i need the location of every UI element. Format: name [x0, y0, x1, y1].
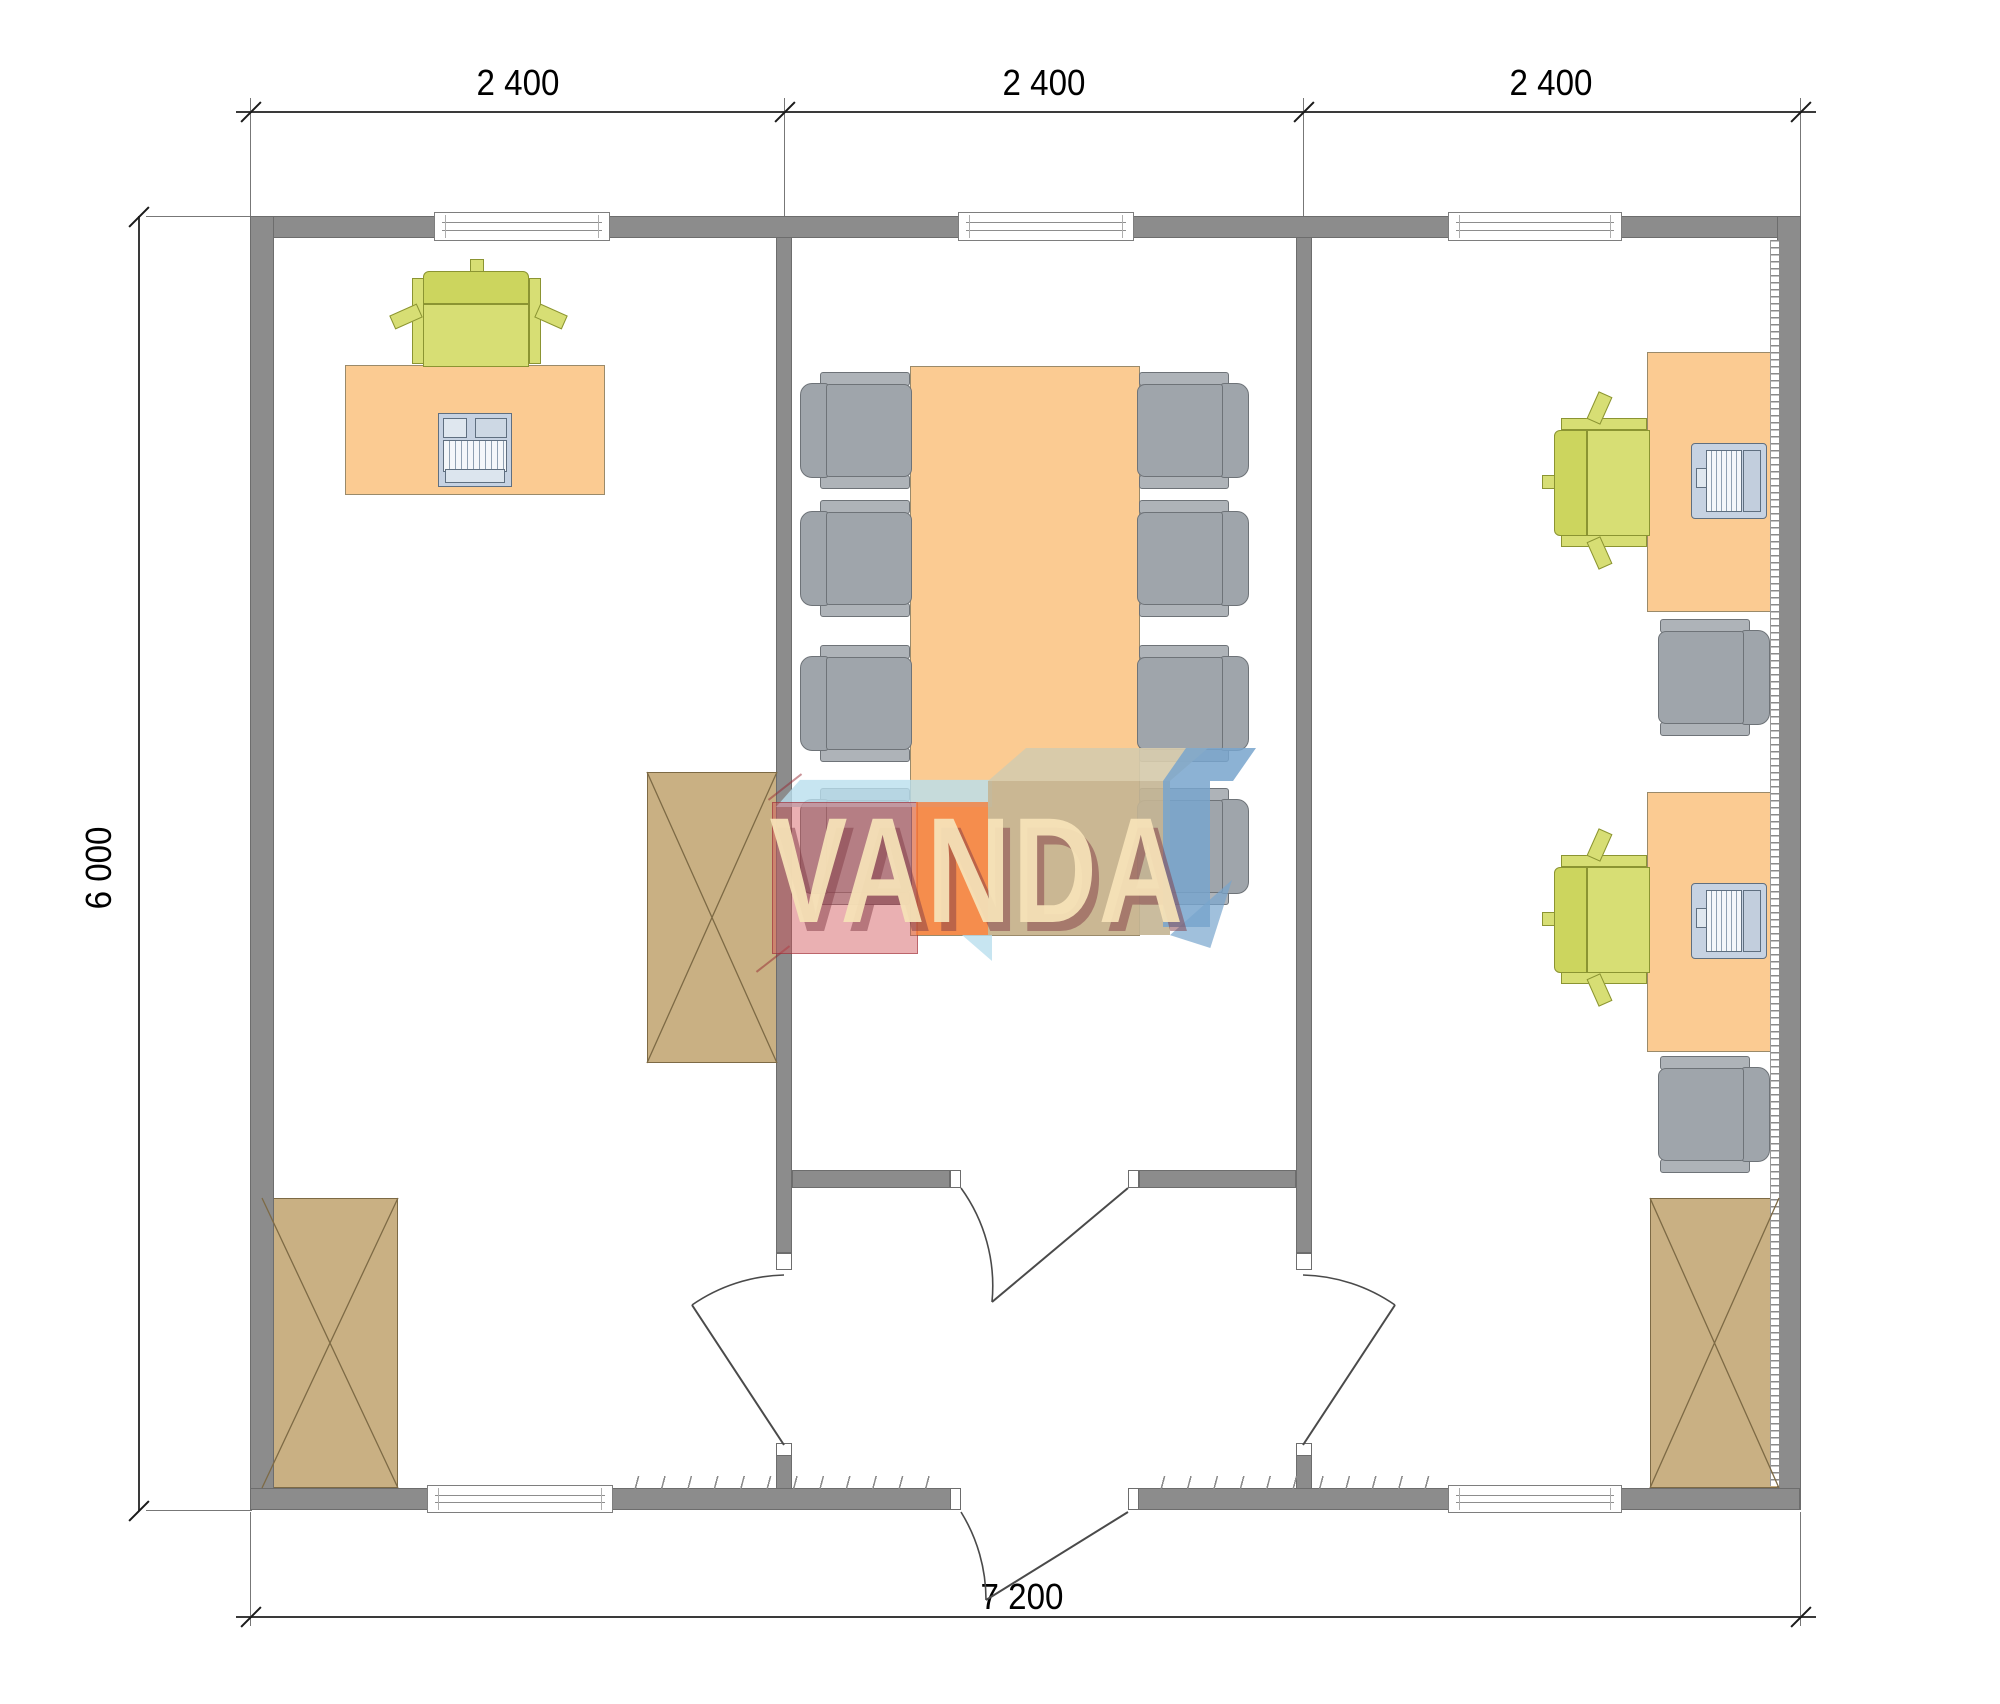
laptop-keys — [1706, 450, 1742, 512]
chair-backrest — [1220, 383, 1249, 478]
keyboard-tray — [445, 469, 505, 483]
office-chair-green — [395, 259, 563, 369]
laptop — [1691, 443, 1767, 519]
door-arc-right-room — [1303, 1275, 1395, 1305]
chair-armrest — [820, 748, 910, 762]
chair-seat — [1587, 430, 1650, 536]
chair-post — [529, 278, 541, 364]
chair-backrest — [800, 383, 829, 478]
chair-backrest — [800, 656, 829, 751]
chair-backrest — [1741, 1067, 1770, 1162]
meeting-chair — [1139, 788, 1249, 903]
laptop — [1691, 883, 1767, 959]
extension-line — [1800, 1512, 1801, 1626]
dim-label-top-2: 2 400 — [970, 62, 1117, 104]
wall-interior-left — [776, 237, 792, 1253]
extension-line — [784, 98, 785, 216]
visitor-chair — [1660, 619, 1770, 734]
meeting-chair — [1139, 500, 1249, 615]
door-jamb — [950, 1170, 961, 1188]
chair-armrest — [820, 475, 910, 489]
office-chair-green — [1542, 833, 1652, 1001]
visitor-chair — [1660, 1056, 1770, 1171]
meeting-chair — [800, 372, 910, 487]
window-top-right — [1448, 212, 1622, 241]
wall-lining-bottom-right — [1139, 1476, 1448, 1489]
meeting-chair — [800, 500, 910, 615]
keyboard-keys — [443, 440, 507, 472]
cabinet-bottom-right — [1650, 1198, 1779, 1488]
chair-armrest — [820, 891, 910, 905]
meeting-chair — [1139, 372, 1249, 487]
window-bottom-left — [427, 1485, 613, 1513]
cabinet-bottom-left — [262, 1198, 398, 1488]
door-jamb — [1128, 1170, 1139, 1188]
meeting-chair — [800, 788, 910, 903]
keyboard-detail — [443, 418, 467, 438]
door-arc-left-room — [692, 1275, 784, 1305]
dim-line-top — [236, 111, 1816, 113]
door-jamb — [776, 1253, 792, 1270]
chair-seat — [1137, 800, 1223, 893]
chair-seat — [1658, 1068, 1744, 1161]
chair-armrest — [1660, 1159, 1750, 1173]
dim-label-left: 6 000 — [78, 794, 120, 941]
door-jamb — [950, 1488, 961, 1510]
chair-armrest — [1139, 603, 1229, 617]
dim-label-bottom: 7 200 — [948, 1576, 1095, 1618]
laptop-screen — [1743, 890, 1761, 952]
chair-seat — [1658, 631, 1744, 724]
wall-lining-bottom-left — [613, 1476, 950, 1489]
meeting-chair — [1139, 645, 1249, 760]
chair-armrest — [1139, 891, 1229, 905]
wall-lining-right — [1770, 240, 1779, 1486]
logo-accent-cyan — [962, 935, 992, 961]
chair-backrest — [1220, 799, 1249, 894]
chair-seat — [1587, 867, 1650, 973]
chair-backrest — [1220, 511, 1249, 606]
door-jamb — [1296, 1443, 1312, 1456]
chair-backrest — [1220, 656, 1249, 751]
door-arc-middle-room — [961, 1188, 993, 1302]
chair-backrest — [1741, 630, 1770, 725]
door-jamb — [1128, 1488, 1139, 1510]
office-chair-green — [1542, 396, 1652, 564]
window-top-left — [434, 212, 610, 241]
extension-line — [1303, 98, 1304, 216]
chair-seat — [1137, 512, 1223, 605]
window-top-middle — [958, 212, 1134, 241]
dim-label-top-1: 2 400 — [444, 62, 591, 104]
chair-seat — [826, 512, 912, 605]
wall-vestibule-left — [792, 1170, 950, 1188]
meeting-chair — [800, 645, 910, 760]
chair-backrest — [1554, 430, 1587, 536]
chair-backrest — [800, 799, 829, 894]
wall-interior-right — [1296, 237, 1312, 1253]
extension-line — [250, 1512, 251, 1626]
door-jamb — [776, 1443, 792, 1456]
chair-armrest — [1139, 748, 1229, 762]
laptop-screen — [1743, 450, 1761, 512]
dim-line-left — [138, 216, 140, 1511]
door-jamb — [1296, 1253, 1312, 1270]
wall-exterior-left — [250, 216, 274, 1510]
dim-label-top-3: 2 400 — [1477, 62, 1624, 104]
chair-seat — [826, 800, 912, 893]
chair-backrest — [800, 511, 829, 606]
conference-table — [910, 366, 1140, 936]
chair-seat — [1137, 384, 1223, 477]
keyboard — [438, 413, 512, 487]
extension-line — [1800, 98, 1801, 216]
extension-line — [250, 98, 251, 216]
chair-backrest — [1554, 867, 1587, 973]
wall-vestibule-right — [1139, 1170, 1296, 1188]
floor-plan-canvas: 2 400 2 400 2 400 6 000 7 200 — [0, 0, 2000, 1704]
laptop-keys — [1706, 890, 1742, 952]
chair-armrest — [820, 603, 910, 617]
window-bottom-right — [1448, 1485, 1622, 1513]
chair-seat — [826, 657, 912, 750]
cabinet-left-middle — [647, 772, 777, 1063]
chair-seat — [1137, 657, 1223, 750]
chair-post — [1561, 418, 1647, 430]
chair-post — [1561, 855, 1647, 867]
chair-backrest — [423, 271, 529, 304]
keyboard-detail — [475, 418, 507, 438]
chair-armrest — [1139, 475, 1229, 489]
extension-line — [146, 1510, 252, 1511]
chair-armrest — [1660, 722, 1750, 736]
extension-line — [146, 216, 252, 217]
wall-exterior-right — [1777, 216, 1801, 1510]
door-leaf-left-room — [692, 1305, 784, 1445]
chair-seat — [826, 384, 912, 477]
door-leaf-middle-room — [992, 1188, 1128, 1302]
chair-seat — [423, 304, 529, 367]
door-leaf-right-room — [1303, 1305, 1395, 1445]
